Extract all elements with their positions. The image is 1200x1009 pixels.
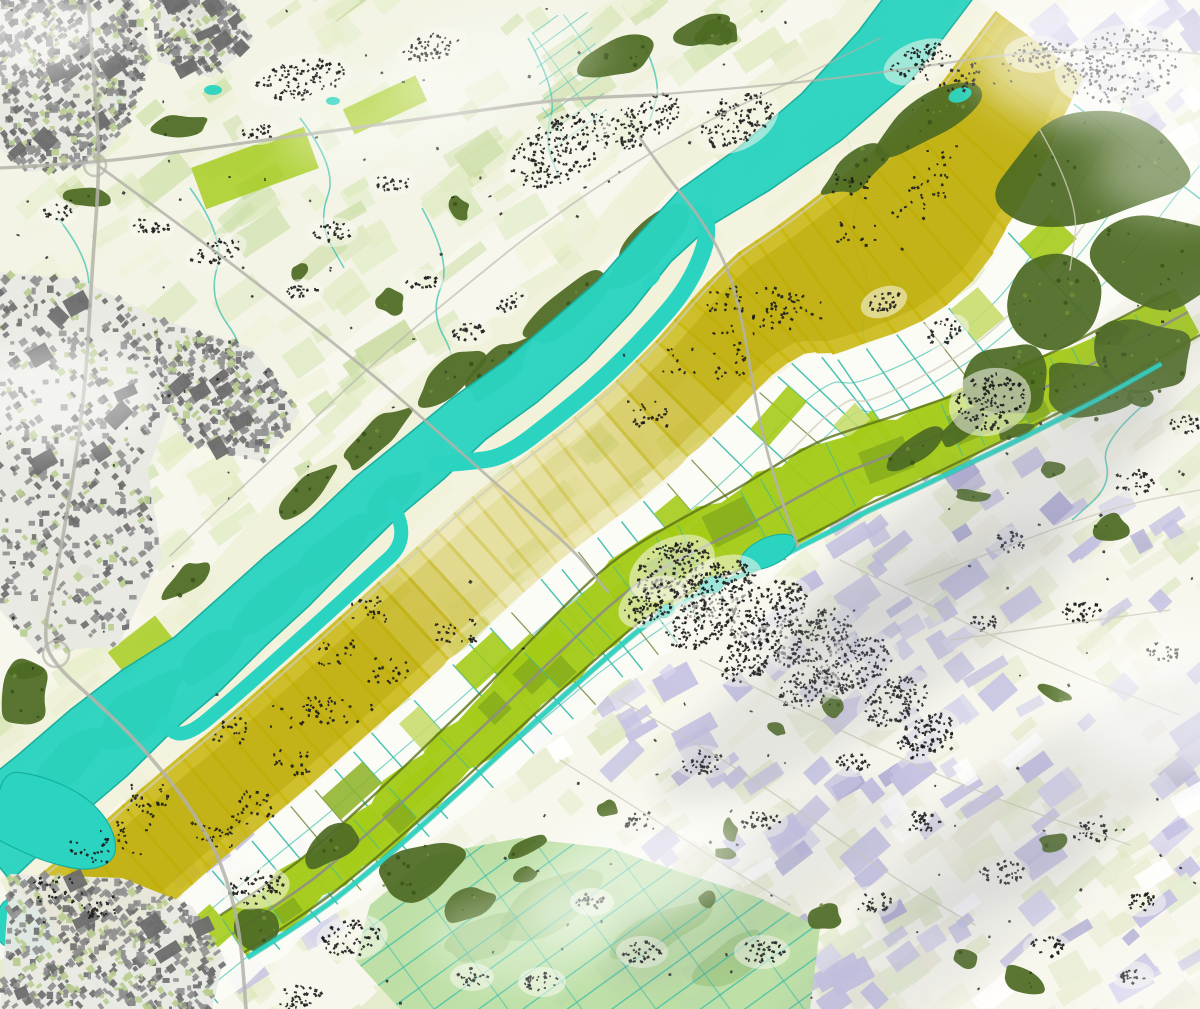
map-canvas	[0, 0, 1200, 1009]
river-landscape-map	[0, 0, 1200, 1009]
